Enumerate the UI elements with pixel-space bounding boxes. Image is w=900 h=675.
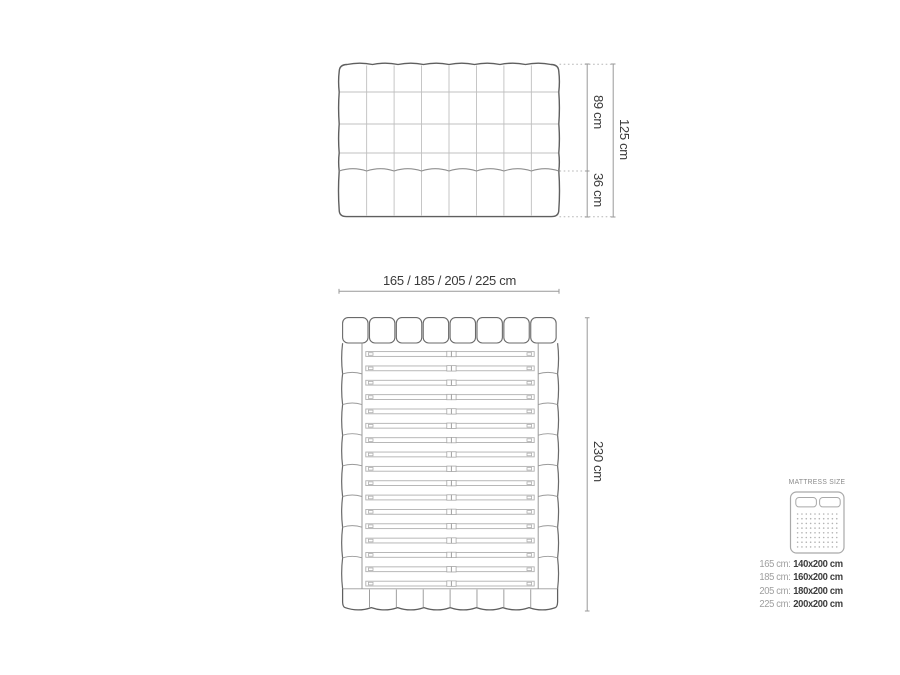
right-rail-outline [558, 343, 559, 589]
top-view-footboard [343, 589, 558, 610]
legend-row: 205 cm:180x200 cm [760, 585, 843, 598]
bed-dimensions-diagram: 89 cm 36 cm 125 cm 165 / 185 / 205 / 225… [0, 0, 900, 675]
front-view-dimension-lines [560, 64, 616, 217]
legend-bed-width: 205 cm: [760, 586, 791, 597]
legend-bed-width: 165 cm: [760, 559, 791, 570]
legend-row: 165 cm:140x200 cm [760, 558, 843, 571]
mattress-size-legend-title: MATTRESS SIZE [774, 477, 860, 486]
front-view-drawing [339, 63, 560, 216]
top-view-drawing [342, 318, 559, 610]
rail-tuft-separators [343, 372, 558, 557]
dimension-label-length: 230 cm [591, 441, 606, 482]
left-rail-outline [342, 343, 343, 589]
legend-row: 185 cm:160x200 cm [760, 571, 843, 584]
legend-bed-width: 185 cm: [760, 572, 791, 583]
legend-mattress-size: 180x200 cm [793, 586, 843, 597]
footboard-tuft-separators [369, 590, 530, 608]
legend-mattress-size: 200x200 cm [793, 599, 843, 610]
mattress-icon [791, 492, 845, 553]
top-view-headboard-tufts [343, 318, 557, 343]
dimension-label-total-height: 125 cm [617, 119, 632, 160]
slat-base [366, 351, 534, 586]
mattress-icon-pillow-right [820, 498, 841, 507]
mattress-size-legend: 165 cm:140x200 cm 185 cm:160x200 cm 205 … [760, 558, 843, 611]
legend-mattress-size: 140x200 cm [793, 559, 843, 570]
legend-mattress-size: 160x200 cm [793, 572, 843, 583]
dimension-label-headboard-height: 89 cm [591, 95, 606, 129]
legend-row: 225 cm:200x200 cm [760, 598, 843, 611]
dimension-label-width-options: 165 / 185 / 205 / 225 cm [339, 273, 560, 288]
dimension-label-base-height: 36 cm [591, 173, 606, 207]
mattress-icon-pillow-left [796, 498, 817, 507]
legend-bed-width: 225 cm: [760, 599, 791, 610]
